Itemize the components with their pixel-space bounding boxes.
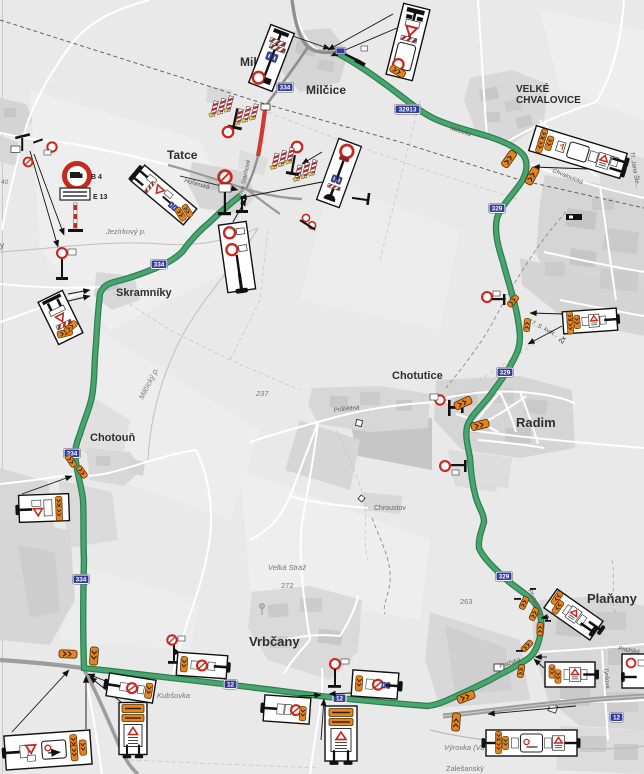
svg-text:Jezírkový p.: Jezírkový p.: [105, 227, 146, 236]
svg-text:272: 272: [281, 581, 294, 590]
svg-text:Chotouň: Chotouň: [90, 432, 135, 444]
svg-text:334: 334: [76, 577, 87, 584]
svg-text:Plaňany: Plaňany: [587, 591, 638, 606]
svg-text:Zalešanský: Zalešanský: [446, 764, 484, 773]
svg-text:Radim: Radim: [516, 415, 556, 430]
svg-text:VELKÉ: VELKÉ: [516, 82, 550, 95]
svg-text:Chotutice: Chotutice: [392, 370, 443, 382]
svg-text:329: 329: [499, 574, 510, 581]
svg-text:Tatce: Tatce: [167, 148, 198, 162]
svg-text:334: 334: [154, 262, 165, 269]
svg-text:Milčice: Milčice: [306, 83, 346, 97]
svg-text:32913: 32913: [399, 107, 417, 114]
svg-text:Velká Stráž: Velká Stráž: [268, 563, 306, 572]
svg-text:12: 12: [227, 682, 235, 689]
svg-text:Skramníky: Skramníky: [116, 287, 173, 299]
svg-text:12: 12: [336, 696, 344, 703]
svg-text:CHVALOVICE: CHVALOVICE: [516, 95, 581, 106]
svg-text:329: 329: [492, 206, 503, 213]
svg-text:Chroustov: Chroustov: [374, 505, 406, 512]
svg-text:263: 263: [460, 597, 473, 606]
svg-text:E 13: E 13: [93, 194, 108, 201]
svg-text:B 4: B 4: [91, 174, 102, 181]
svg-text:Kubšovka: Kubšovka: [157, 691, 190, 700]
svg-text:334: 334: [280, 85, 291, 92]
svg-text:y: y: [0, 241, 4, 250]
svg-text:237: 237: [255, 389, 269, 398]
svg-text:12: 12: [613, 715, 621, 722]
svg-text:40: 40: [1, 179, 9, 186]
svg-text:Vrbčany: Vrbčany: [249, 634, 300, 649]
svg-text:329: 329: [500, 370, 511, 377]
